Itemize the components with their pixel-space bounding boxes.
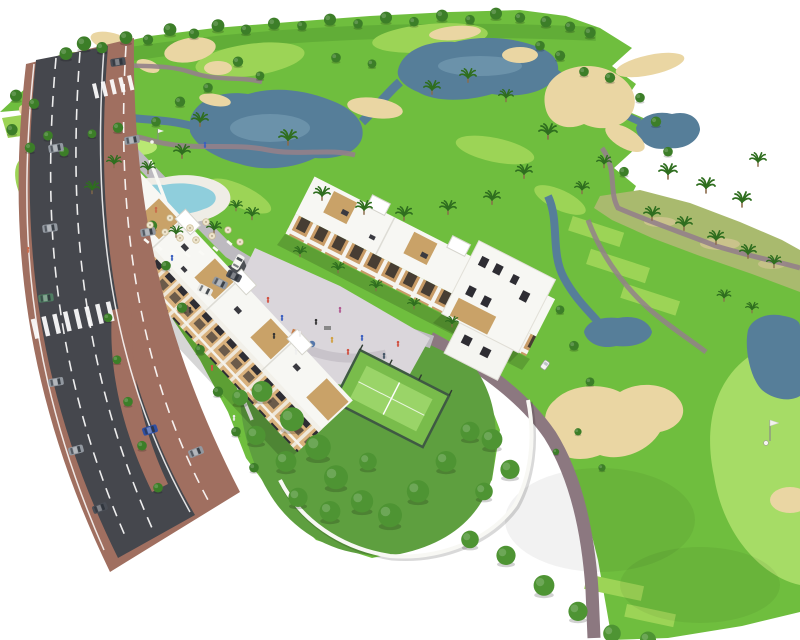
tree-icon (280, 407, 304, 434)
tree-icon (137, 441, 147, 452)
golfer (764, 441, 769, 446)
person-icon (295, 349, 298, 355)
tree-icon (586, 377, 595, 387)
tree-icon (331, 53, 341, 64)
tree-icon (515, 12, 525, 24)
person-icon (281, 315, 284, 321)
tree-icon (619, 167, 629, 178)
tree-icon (407, 480, 429, 505)
tree-icon (540, 16, 551, 29)
tree-icon (6, 124, 17, 137)
tree-icon (368, 59, 377, 69)
tree-icon (598, 464, 605, 472)
tree-icon (175, 96, 185, 108)
tree-icon (232, 390, 248, 408)
tree-icon (482, 429, 503, 452)
tree-icon (164, 23, 177, 37)
tree-icon (605, 72, 615, 84)
tree-icon (96, 42, 107, 55)
tree-icon (113, 122, 123, 134)
tree-icon (555, 50, 565, 62)
person-icon (273, 333, 276, 339)
tree-icon (461, 531, 479, 551)
tree-icon (249, 463, 259, 474)
person-icon (299, 331, 302, 337)
tree-icon (320, 501, 341, 524)
tree-icon (233, 56, 243, 68)
tree-icon (161, 261, 171, 272)
tree-icon (584, 27, 595, 40)
tree-icon (568, 602, 587, 623)
person-icon (315, 319, 318, 325)
palm-tree-icon (750, 153, 766, 167)
tree-icon (297, 21, 307, 32)
tree-icon (256, 71, 265, 81)
tree-icon (574, 428, 581, 436)
umbrella-icon (187, 225, 194, 232)
tree-icon (10, 90, 22, 103)
tree-icon (460, 422, 479, 443)
tree-icon (565, 21, 575, 33)
person-icon (155, 207, 158, 213)
person-icon (211, 365, 214, 371)
tree-icon (241, 24, 251, 36)
tree-icon (29, 98, 39, 110)
tree-icon (534, 575, 555, 598)
tree-icon (252, 381, 273, 404)
person-icon (331, 337, 334, 343)
tree-icon (436, 451, 457, 474)
tree-icon (123, 397, 133, 408)
tree-icon (203, 83, 213, 94)
tree-icon (88, 129, 97, 139)
tree-icon (120, 31, 133, 45)
tree-icon (436, 10, 448, 23)
tree-icon (651, 116, 661, 128)
umbrella-icon (147, 222, 154, 229)
tree-icon (151, 117, 161, 128)
bunker (204, 61, 232, 75)
tree-icon (556, 305, 565, 315)
umbrella-icon (203, 219, 210, 226)
umbrella-icon (209, 233, 216, 240)
tree-icon (143, 34, 153, 46)
tree-icon (276, 451, 297, 474)
tree-icon (490, 8, 502, 21)
tree-icon (288, 488, 307, 509)
person-icon (397, 341, 400, 347)
tree-icon (153, 483, 163, 494)
person-icon (339, 307, 342, 313)
person-icon (383, 353, 386, 359)
rough-shading (620, 547, 780, 623)
playground-equipment (324, 326, 331, 330)
tree-icon (663, 147, 673, 158)
person-icon (361, 335, 364, 341)
tree-icon (60, 47, 73, 61)
tree-icon (380, 12, 392, 25)
tree-icon (305, 434, 331, 463)
water-reflection (230, 114, 310, 142)
tree-icon (324, 465, 348, 492)
pond (584, 317, 652, 347)
tree-icon (635, 93, 645, 104)
person-icon (267, 297, 270, 303)
umbrella-icon (162, 229, 169, 236)
person-icon (27, 247, 30, 253)
tree-icon (268, 18, 280, 31)
tree-icon (177, 302, 187, 314)
tree-icon (43, 131, 53, 142)
tree-icon (535, 41, 545, 52)
tree-icon (409, 17, 419, 28)
palm-tree-icon (659, 164, 677, 179)
tree-icon (353, 19, 363, 30)
person-icon (347, 349, 350, 355)
umbrella-icon (167, 215, 174, 222)
tree-icon (246, 426, 265, 447)
tree-icon (378, 503, 402, 530)
umbrella-icon (177, 235, 184, 242)
bunker (502, 47, 538, 63)
tree-icon (553, 449, 559, 456)
palm-tree-icon (697, 178, 715, 193)
tree-icon (475, 483, 493, 503)
tree-icon (569, 341, 579, 352)
golf-resort-render (0, 0, 800, 640)
tree-icon (579, 67, 589, 78)
tree-icon (359, 453, 377, 473)
tree-icon (324, 14, 336, 27)
aerial-render-image (0, 0, 800, 640)
pond (636, 113, 700, 149)
golfer (150, 140, 154, 144)
umbrella-icon (193, 237, 200, 244)
tree-icon (213, 386, 223, 398)
umbrella-icon (225, 227, 232, 234)
tree-icon (104, 313, 113, 323)
tree-icon (25, 142, 35, 154)
person-icon (233, 415, 236, 421)
tree-icon (189, 28, 199, 40)
palm-tree-icon (733, 192, 751, 207)
tree-icon (113, 355, 122, 365)
umbrella-icon (237, 239, 244, 246)
tree-icon (496, 546, 515, 567)
person-icon (204, 142, 207, 148)
tree-icon (212, 19, 225, 33)
tree-icon (500, 460, 519, 481)
person-icon (189, 307, 192, 313)
tree-icon (351, 490, 373, 515)
tree-icon (195, 345, 205, 356)
tree-icon (231, 427, 241, 438)
tree-icon (77, 36, 91, 52)
person-icon (171, 255, 174, 261)
tree-icon (465, 15, 475, 26)
